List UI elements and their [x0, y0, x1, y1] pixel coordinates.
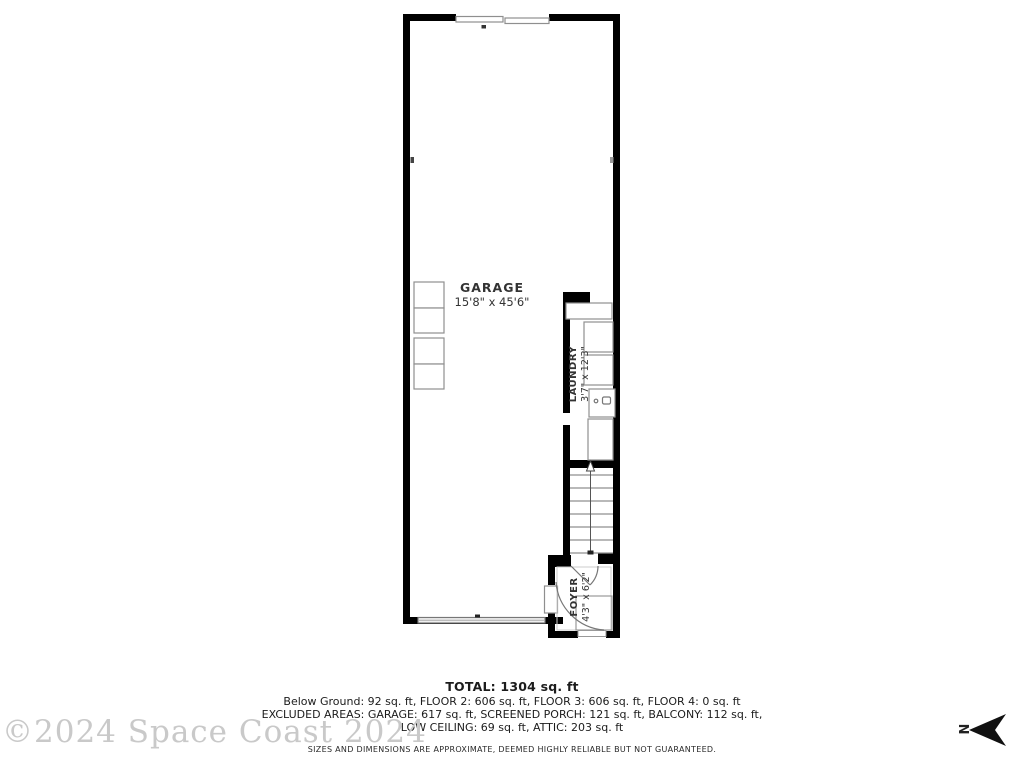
total-area-text: TOTAL: 1304 sq. ft — [0, 679, 1024, 694]
floor-areas-text: Below Ground: 92 sq. ft, FLOOR 2: 606 sq… — [0, 695, 1024, 708]
laundry-cabinet-icon — [588, 419, 613, 460]
cabinet-icon — [414, 338, 444, 364]
entry-door-swing-icon — [556, 582, 604, 630]
wall-foyer-bottom-right — [606, 631, 620, 638]
entry-threshold — [578, 631, 606, 637]
watermark: ©2024 Space Coast 2024 — [2, 714, 427, 750]
laundry-counter-icon — [566, 303, 612, 319]
laundry-dims: 3'7" x 12'3" — [580, 346, 591, 402]
garage-dims: 15'8" x 45'6" — [455, 295, 530, 309]
foyer-window-icon — [545, 586, 558, 613]
foyer-label: FOYER — [569, 577, 580, 616]
wall-marker-icon — [411, 157, 415, 163]
wall-laundry-top — [563, 292, 590, 303]
garage-cabinets — [414, 282, 444, 389]
foyer-dims: 4'3" x 6'2" — [581, 572, 592, 622]
garage-door — [418, 615, 545, 624]
foyer-label-group: FOYER 4'3" x 6'2" — [569, 572, 592, 622]
garage-top-window — [456, 17, 549, 24]
wall-top-left — [403, 14, 456, 21]
sink-basin-icon — [603, 397, 611, 404]
laundry-label-group: LAUNDRY 3'7" x 12'3" — [568, 346, 591, 403]
wall-left — [403, 14, 410, 624]
wall-foyer-left-upper — [548, 565, 555, 585]
garage-label: GARAGE — [460, 280, 524, 295]
stair-start-tick — [588, 551, 594, 555]
wall-marker-icon — [610, 157, 614, 163]
cabinet-icon — [414, 282, 444, 308]
wall-garage-stairs — [563, 425, 570, 560]
cabinet-icon — [414, 308, 444, 333]
garage-door-tick — [475, 615, 480, 618]
window-pane-icon — [456, 17, 503, 23]
window-pane-icon — [505, 18, 549, 24]
staircase — [570, 475, 613, 553]
wall-foyer-bottom-left — [548, 631, 578, 638]
window-sensor-dot — [482, 25, 487, 29]
floor-plan: GARAGE 15'8" x 45'6" LAUNDRY 3'7" x 12'3… — [0, 0, 1024, 768]
laundry-label: LAUNDRY — [568, 346, 579, 403]
garage-label-group: GARAGE 15'8" x 45'6" — [455, 280, 530, 309]
wall-right — [613, 14, 620, 638]
floor-plan-page: GARAGE 15'8" x 45'6" LAUNDRY 3'7" x 12'3… — [0, 0, 1024, 768]
wall-foyer-top-right — [598, 553, 613, 564]
wall-top-right — [549, 14, 620, 21]
cabinet-icon — [414, 364, 444, 389]
